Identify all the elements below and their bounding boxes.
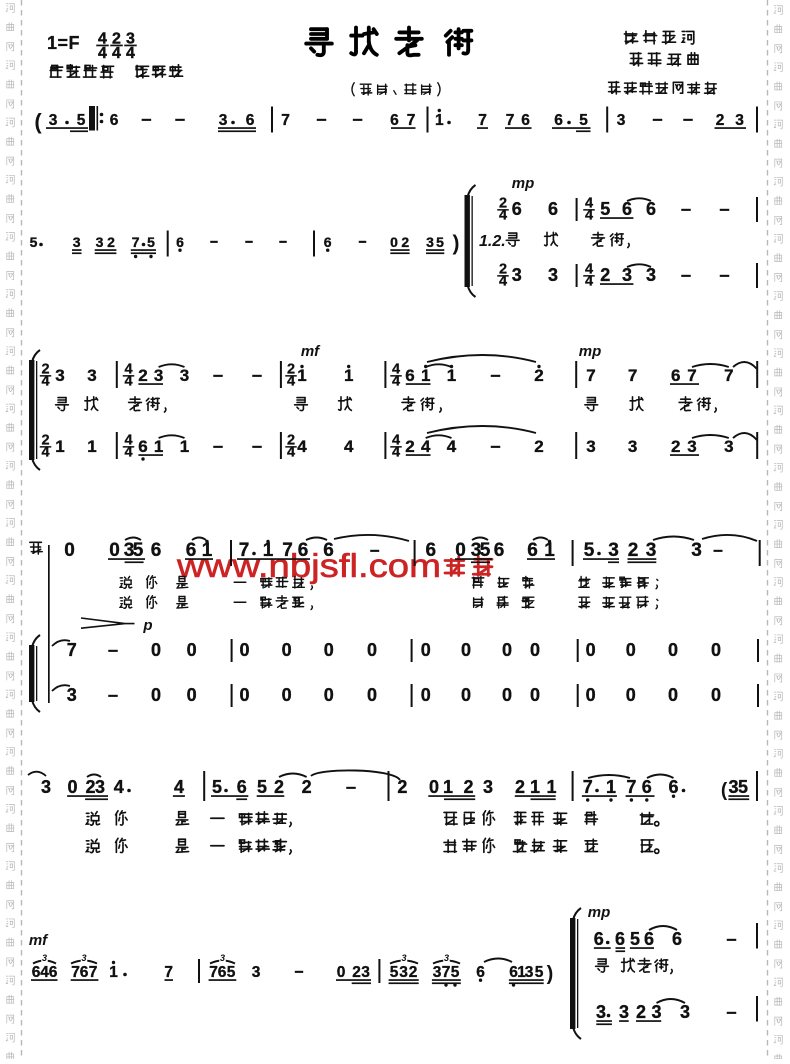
svg-text:6: 6: [476, 964, 485, 981]
svg-text:6: 6: [622, 199, 632, 219]
svg-text:3: 3: [399, 964, 408, 981]
svg-text:mp: mp: [512, 175, 535, 192]
svg-text:6: 6: [49, 964, 58, 981]
svg-text:www.nbjsfl.com: www.nbjsfl.com: [176, 547, 441, 584]
svg-text:3: 3: [219, 112, 228, 129]
svg-text:6: 6: [512, 199, 522, 219]
svg-text:mp: mp: [579, 343, 602, 360]
svg-text:5: 5: [77, 112, 86, 129]
svg-text:0: 0: [109, 540, 120, 561]
svg-text:3: 3: [154, 366, 163, 385]
svg-text:3: 3: [691, 540, 702, 561]
svg-text:3: 3: [444, 953, 449, 963]
svg-text:4: 4: [287, 374, 295, 390]
svg-text:7: 7: [506, 112, 515, 129]
svg-text:3: 3: [646, 540, 657, 561]
svg-text:6: 6: [298, 540, 309, 561]
svg-text:6: 6: [246, 112, 255, 129]
svg-text:3: 3: [426, 234, 434, 250]
svg-text:2: 2: [671, 437, 680, 456]
svg-text:1: 1: [109, 964, 118, 981]
svg-text:6: 6: [218, 964, 227, 981]
svg-text:4: 4: [41, 445, 49, 461]
svg-text:4: 4: [585, 274, 593, 290]
svg-text:): ): [453, 232, 460, 255]
svg-text:6: 6: [615, 929, 625, 949]
svg-text:7: 7: [164, 964, 173, 981]
svg-text:6: 6: [405, 366, 414, 385]
svg-text:4: 4: [124, 374, 132, 390]
svg-text:7: 7: [626, 777, 636, 797]
svg-text:2: 2: [397, 777, 407, 797]
svg-text:3: 3: [735, 112, 744, 129]
svg-text:0: 0: [239, 685, 249, 705]
svg-text:3: 3: [220, 953, 225, 963]
svg-text:0: 0: [502, 640, 512, 660]
svg-text:0: 0: [626, 640, 636, 660]
svg-text:0: 0: [187, 685, 197, 705]
svg-text:3: 3: [87, 366, 96, 385]
svg-text:2: 2: [515, 777, 525, 797]
svg-text:6: 6: [324, 234, 332, 250]
svg-text:6: 6: [548, 199, 558, 219]
svg-text:3: 3: [619, 1002, 629, 1022]
svg-text:1: 1: [443, 777, 453, 797]
svg-text:6: 6: [668, 777, 678, 797]
svg-text:1.2.: 1.2.: [479, 233, 506, 250]
svg-text:5: 5: [30, 234, 38, 250]
svg-text:1: 1: [435, 112, 444, 129]
svg-text:3: 3: [687, 437, 696, 456]
svg-text:0: 0: [282, 685, 292, 705]
svg-text:2: 2: [463, 777, 473, 797]
svg-text:1: 1: [87, 437, 96, 456]
svg-text:1: 1: [447, 366, 456, 385]
svg-text:0: 0: [626, 685, 636, 705]
svg-text:0: 0: [367, 640, 377, 660]
svg-text:5: 5: [738, 777, 748, 797]
svg-text:3: 3: [42, 953, 47, 963]
svg-text:4: 4: [499, 274, 507, 290]
svg-text:0: 0: [151, 685, 161, 705]
svg-text:1: 1: [55, 437, 64, 456]
svg-text:4: 4: [112, 45, 121, 62]
svg-text:7: 7: [628, 366, 637, 385]
svg-text:4: 4: [499, 208, 507, 224]
svg-text:2: 2: [138, 366, 147, 385]
svg-text:3: 3: [433, 964, 442, 981]
svg-text:7: 7: [71, 964, 80, 981]
svg-text:2: 2: [107, 234, 115, 250]
svg-text:0: 0: [282, 640, 292, 660]
svg-text:3: 3: [622, 265, 632, 285]
svg-text:3: 3: [680, 1002, 690, 1022]
svg-text:6: 6: [151, 540, 162, 561]
svg-text:0: 0: [390, 234, 398, 250]
svg-text:3: 3: [525, 964, 534, 981]
svg-text:4: 4: [126, 45, 135, 62]
svg-text:2: 2: [636, 1002, 646, 1022]
svg-text:6: 6: [521, 112, 530, 129]
svg-text:6: 6: [323, 540, 334, 561]
svg-text:0: 0: [337, 964, 346, 981]
svg-text:6: 6: [426, 540, 437, 561]
svg-text:2: 2: [600, 265, 610, 285]
svg-text:3: 3: [96, 234, 104, 250]
svg-text:2: 2: [274, 777, 284, 797]
svg-text:0: 0: [711, 640, 721, 660]
svg-text:5: 5: [212, 777, 222, 797]
svg-text:): ): [547, 963, 554, 985]
svg-text:4: 4: [447, 437, 457, 456]
svg-text:7: 7: [442, 964, 451, 981]
svg-text:7: 7: [209, 964, 218, 981]
svg-text:7: 7: [586, 366, 595, 385]
svg-text:0: 0: [324, 640, 334, 660]
svg-text:6: 6: [642, 777, 652, 797]
svg-text:2: 2: [352, 964, 361, 981]
svg-text:3: 3: [81, 953, 86, 963]
svg-text:3: 3: [724, 437, 733, 456]
svg-text:(: (: [34, 109, 42, 134]
svg-text:7: 7: [282, 540, 293, 561]
svg-text:6: 6: [554, 112, 563, 129]
svg-text:4: 4: [98, 45, 107, 62]
svg-text:5: 5: [133, 540, 144, 561]
svg-text:2: 2: [534, 366, 543, 385]
svg-text:p: p: [142, 617, 152, 634]
svg-text:3: 3: [73, 234, 81, 250]
svg-text:3: 3: [651, 1002, 661, 1022]
svg-text:3: 3: [49, 112, 58, 129]
svg-text:5: 5: [227, 964, 236, 981]
svg-text:0: 0: [429, 777, 439, 797]
svg-text:0: 0: [67, 777, 77, 797]
svg-text:mp: mp: [588, 904, 611, 921]
svg-text:0: 0: [461, 640, 471, 660]
svg-text:4: 4: [297, 437, 307, 456]
svg-text:4: 4: [287, 445, 295, 461]
svg-text:3: 3: [586, 437, 595, 456]
svg-text:3: 3: [41, 777, 51, 797]
svg-text:5: 5: [579, 112, 588, 129]
svg-text:6: 6: [390, 112, 399, 129]
svg-text:3: 3: [67, 685, 77, 705]
svg-text:1: 1: [546, 777, 556, 797]
svg-text:1: 1: [606, 777, 616, 797]
svg-text:5: 5: [451, 964, 460, 981]
svg-text:6: 6: [186, 540, 197, 561]
svg-text:0: 0: [586, 640, 596, 660]
svg-text:6: 6: [644, 929, 654, 949]
svg-text:4: 4: [585, 208, 593, 224]
svg-text:1: 1: [421, 366, 430, 385]
svg-text:0: 0: [64, 540, 75, 561]
svg-text:7: 7: [132, 234, 140, 250]
svg-text:0: 0: [530, 685, 540, 705]
svg-text:4: 4: [114, 777, 124, 797]
svg-text:3: 3: [95, 777, 105, 797]
svg-text:3: 3: [55, 366, 64, 385]
svg-text:6: 6: [80, 964, 89, 981]
svg-text:3: 3: [361, 964, 370, 981]
svg-text:1=F: 1=F: [47, 33, 80, 53]
svg-text:0: 0: [502, 685, 512, 705]
svg-text:7: 7: [89, 964, 98, 981]
svg-text:6: 6: [671, 366, 680, 385]
svg-text:(: (: [721, 780, 728, 801]
svg-text:4: 4: [392, 374, 400, 390]
svg-text:6: 6: [176, 234, 184, 250]
svg-text:3: 3: [401, 953, 406, 963]
svg-text:2: 2: [409, 964, 418, 981]
svg-text:4: 4: [421, 437, 431, 456]
svg-text:3: 3: [483, 777, 493, 797]
svg-text:1: 1: [154, 437, 163, 456]
svg-text:0: 0: [711, 685, 721, 705]
svg-text:3: 3: [617, 112, 626, 129]
svg-text:2: 2: [401, 234, 409, 250]
svg-text:7: 7: [724, 366, 733, 385]
svg-text:5: 5: [535, 964, 544, 981]
svg-text:0: 0: [367, 685, 377, 705]
svg-text:1: 1: [530, 777, 540, 797]
svg-text:0: 0: [421, 640, 431, 660]
svg-text:2: 2: [628, 540, 639, 561]
svg-text:6: 6: [527, 540, 538, 561]
svg-text:5: 5: [436, 234, 444, 250]
svg-text:0: 0: [239, 640, 249, 660]
svg-text:0: 0: [421, 685, 431, 705]
svg-text:0: 0: [586, 685, 596, 705]
svg-text:6: 6: [237, 777, 247, 797]
svg-text:3: 3: [646, 265, 656, 285]
svg-text:2: 2: [302, 777, 312, 797]
svg-text:1: 1: [180, 437, 189, 456]
svg-text:0: 0: [187, 640, 197, 660]
svg-text:2: 2: [405, 437, 414, 456]
svg-text:4: 4: [392, 445, 400, 461]
svg-text:0: 0: [668, 640, 678, 660]
svg-text:3: 3: [548, 265, 558, 285]
svg-text:6: 6: [672, 929, 682, 949]
svg-text:2: 2: [534, 437, 543, 456]
svg-text:4: 4: [344, 437, 354, 456]
svg-text:1: 1: [344, 366, 353, 385]
svg-text:2: 2: [716, 112, 725, 129]
svg-text:3: 3: [180, 366, 189, 385]
svg-text:7: 7: [583, 777, 593, 797]
svg-text:6: 6: [138, 437, 147, 456]
svg-text:4: 4: [124, 445, 132, 461]
svg-text:7: 7: [478, 112, 487, 129]
svg-text:0: 0: [461, 685, 471, 705]
svg-text:0: 0: [324, 685, 334, 705]
svg-text:5: 5: [584, 540, 595, 561]
svg-text:3: 3: [608, 540, 619, 561]
svg-text:0: 0: [530, 640, 540, 660]
svg-text:6: 6: [110, 112, 119, 129]
svg-text:3: 3: [628, 437, 637, 456]
svg-text:5: 5: [390, 964, 399, 981]
svg-text:mf: mf: [29, 932, 49, 949]
svg-text:6: 6: [494, 540, 505, 561]
svg-text:0: 0: [151, 640, 161, 660]
svg-text:5: 5: [480, 540, 491, 561]
svg-text:7: 7: [407, 112, 416, 129]
svg-text:7: 7: [67, 640, 77, 660]
svg-text:7: 7: [239, 540, 250, 561]
svg-text:0: 0: [455, 540, 466, 561]
svg-text:7: 7: [281, 112, 290, 129]
svg-text:5: 5: [600, 199, 610, 219]
svg-text:7: 7: [687, 366, 696, 385]
svg-text:6: 6: [646, 199, 656, 219]
svg-text:4: 4: [41, 374, 49, 390]
svg-text:5: 5: [257, 777, 267, 797]
svg-text:5: 5: [147, 234, 155, 250]
svg-text:3: 3: [252, 964, 261, 981]
svg-text:mf: mf: [301, 343, 321, 360]
svg-text:4: 4: [174, 777, 184, 797]
svg-text:3: 3: [512, 265, 522, 285]
svg-text:0: 0: [668, 685, 678, 705]
svg-text:1: 1: [297, 366, 306, 385]
svg-text:3: 3: [596, 1002, 606, 1022]
svg-text:6: 6: [594, 929, 604, 949]
svg-text:5: 5: [630, 929, 640, 949]
